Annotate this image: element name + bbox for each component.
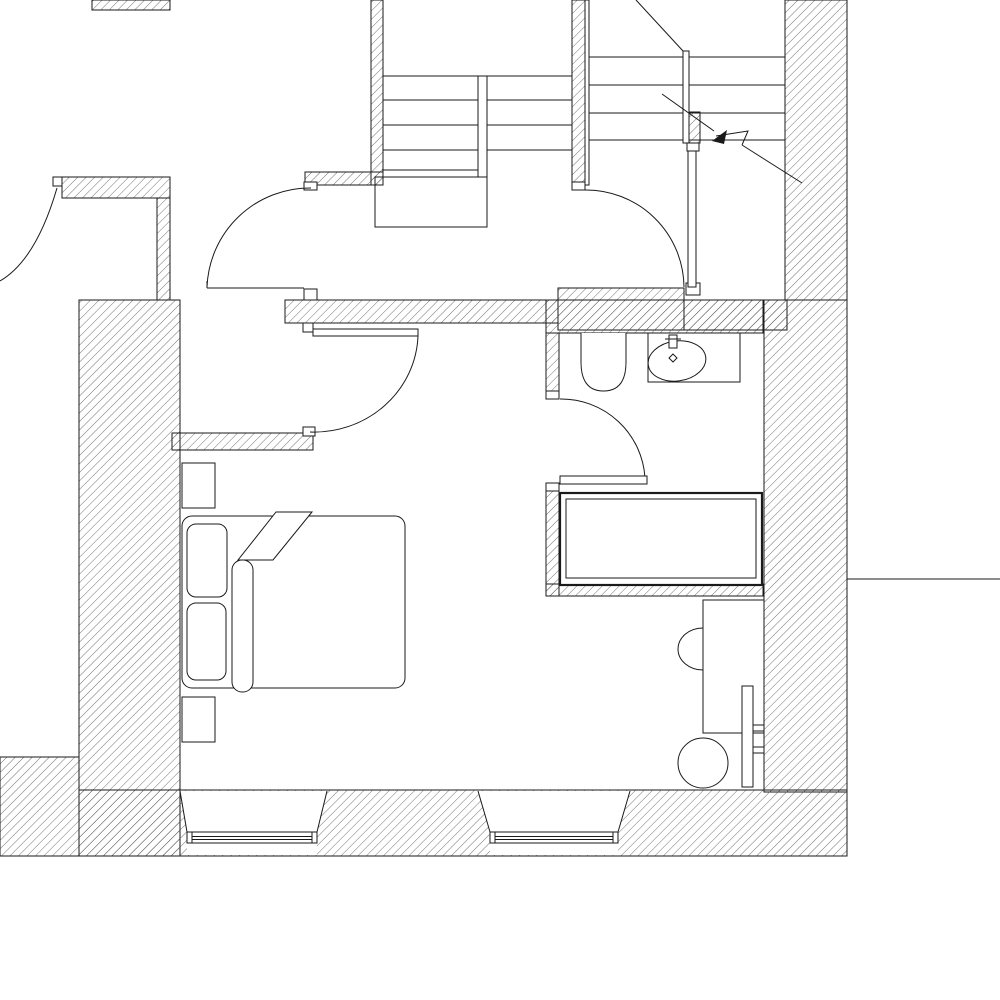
arrow-line-upper xyxy=(636,0,683,51)
drain-symbol xyxy=(669,354,677,362)
door-jamb xyxy=(572,182,585,190)
staircase-right xyxy=(589,51,785,151)
wall-bathroom-left-upper xyxy=(546,333,559,397)
door-jamb xyxy=(304,182,317,190)
desk-side-chair xyxy=(678,628,703,670)
door-jamb xyxy=(303,427,315,436)
wall-left-main xyxy=(79,300,180,856)
door-swing-arc-west xyxy=(0,188,57,281)
window-reveal xyxy=(180,791,327,832)
wall-stair-right xyxy=(572,0,585,182)
radiator-strip xyxy=(742,686,753,787)
window-right xyxy=(478,791,630,855)
door-jamb xyxy=(546,483,559,491)
door-jamb xyxy=(303,323,313,332)
desk xyxy=(703,600,764,733)
floor-plan-canvas xyxy=(0,0,1000,1000)
wall-stair-right-face xyxy=(585,0,589,185)
floor-plan-drawing xyxy=(0,0,1000,1000)
nightstand-bottom xyxy=(182,697,215,742)
pillow-bottom xyxy=(187,603,226,680)
door-swing-arc-bathroom xyxy=(560,399,645,478)
wall-bottom-left-block xyxy=(0,757,79,856)
desk-area xyxy=(678,600,764,788)
wall-left-upper xyxy=(157,198,170,300)
window-left xyxy=(180,791,327,855)
bathroom-fixtures xyxy=(560,333,762,585)
wall-west-door-head xyxy=(62,177,170,198)
door-jamb xyxy=(304,289,317,300)
radiator-bracket xyxy=(753,747,764,753)
washbasin-counter xyxy=(648,333,740,382)
door-swing-arc-bedroom xyxy=(310,336,418,432)
stair-stringer xyxy=(478,76,487,177)
door-leaf-bathroom xyxy=(560,476,647,484)
door-swing-arc-stair-lobby xyxy=(585,190,684,287)
window-reveal xyxy=(478,791,630,832)
desk-chair xyxy=(678,738,728,788)
staircase-left xyxy=(375,76,572,227)
pillow-top xyxy=(187,524,227,597)
wall-right-main xyxy=(764,300,847,792)
door-hinge-block xyxy=(53,177,62,186)
stair-landing xyxy=(375,177,487,227)
door-jamb xyxy=(546,391,559,399)
bedroom-furniture xyxy=(182,463,405,742)
bed-runner xyxy=(232,560,253,692)
door-leaf-bedroom xyxy=(313,329,418,336)
toilet xyxy=(581,333,626,391)
nightstand-top xyxy=(182,463,215,508)
door-swing-arc-hall xyxy=(207,188,311,287)
stair-newel-jamb xyxy=(687,143,699,151)
wall-stair-left xyxy=(371,0,383,185)
stair-newel-rail xyxy=(683,51,689,143)
wall-bedroom-top xyxy=(172,433,313,450)
bathtub-outer xyxy=(560,493,762,585)
arrow-head xyxy=(712,130,727,144)
door-leaf-stair-lobby xyxy=(688,151,696,287)
faucet xyxy=(669,335,677,348)
wall-corridor-west xyxy=(285,300,558,323)
wall-right-upper xyxy=(785,0,847,300)
stair-direction-arrow xyxy=(636,0,802,183)
wall-top-fragment xyxy=(92,0,170,10)
wall-bathroom-left-lower xyxy=(546,491,559,596)
